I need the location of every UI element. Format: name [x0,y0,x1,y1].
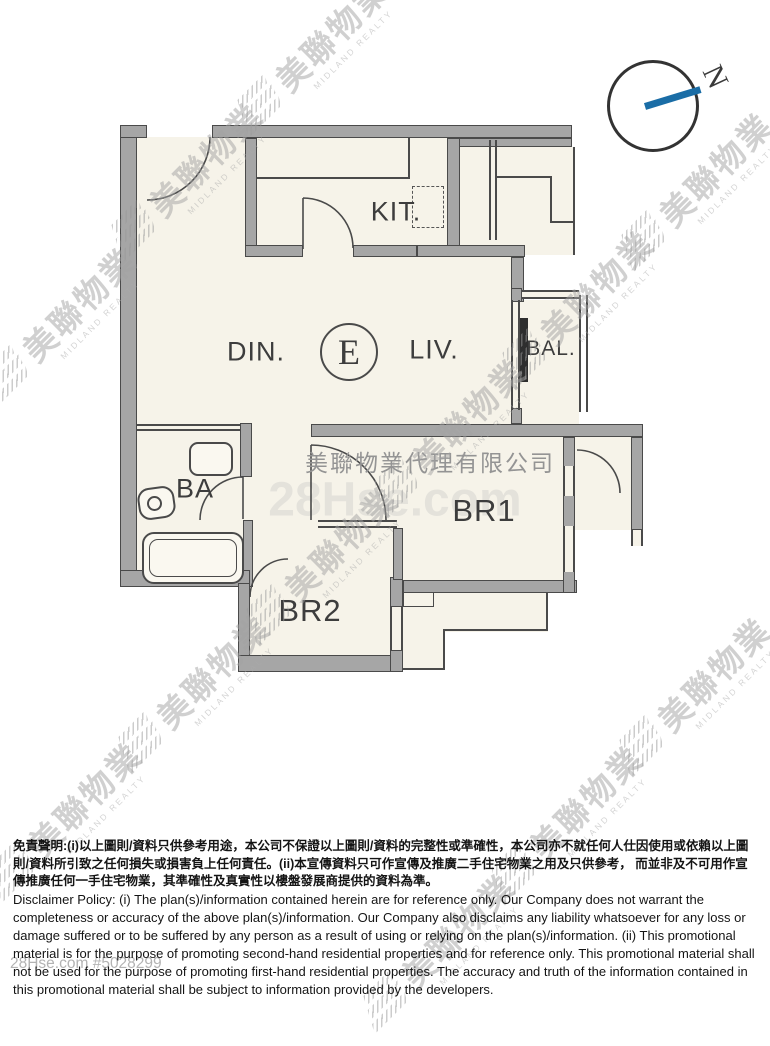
entrance-door-arc [147,137,210,200]
utility-door-arc [577,450,620,493]
bedroom2-label: BR2 [278,593,341,629]
bathroom-label: BA [176,474,214,505]
unit-circle: E [320,323,378,381]
bedroom2-door-arc [250,559,288,597]
floor-plan-page: { "compass": { "north_label": "N", "need… [0,0,770,1000]
unit-letter: E [338,331,360,373]
kitchen-door-arc [303,198,353,249]
disclaimer-english: Disclaimer Policy: (i) The plan(s)/infor… [13,891,761,999]
kitchen-label: KIT. [371,197,422,228]
disclaimer-chinese: 免責聲明:(i)以上圖則/資料只供參考用途，本公司不保證以上圖則/資料的完整性或… [13,838,759,891]
dining-label: DIN. [227,337,285,368]
agency-name-watermark: 美聯物業代理有限公司 [305,444,555,478]
bedroom1-label: BR1 [452,493,515,529]
balcony-label: BAL. [526,337,576,361]
living-label: LIV. [409,335,459,366]
